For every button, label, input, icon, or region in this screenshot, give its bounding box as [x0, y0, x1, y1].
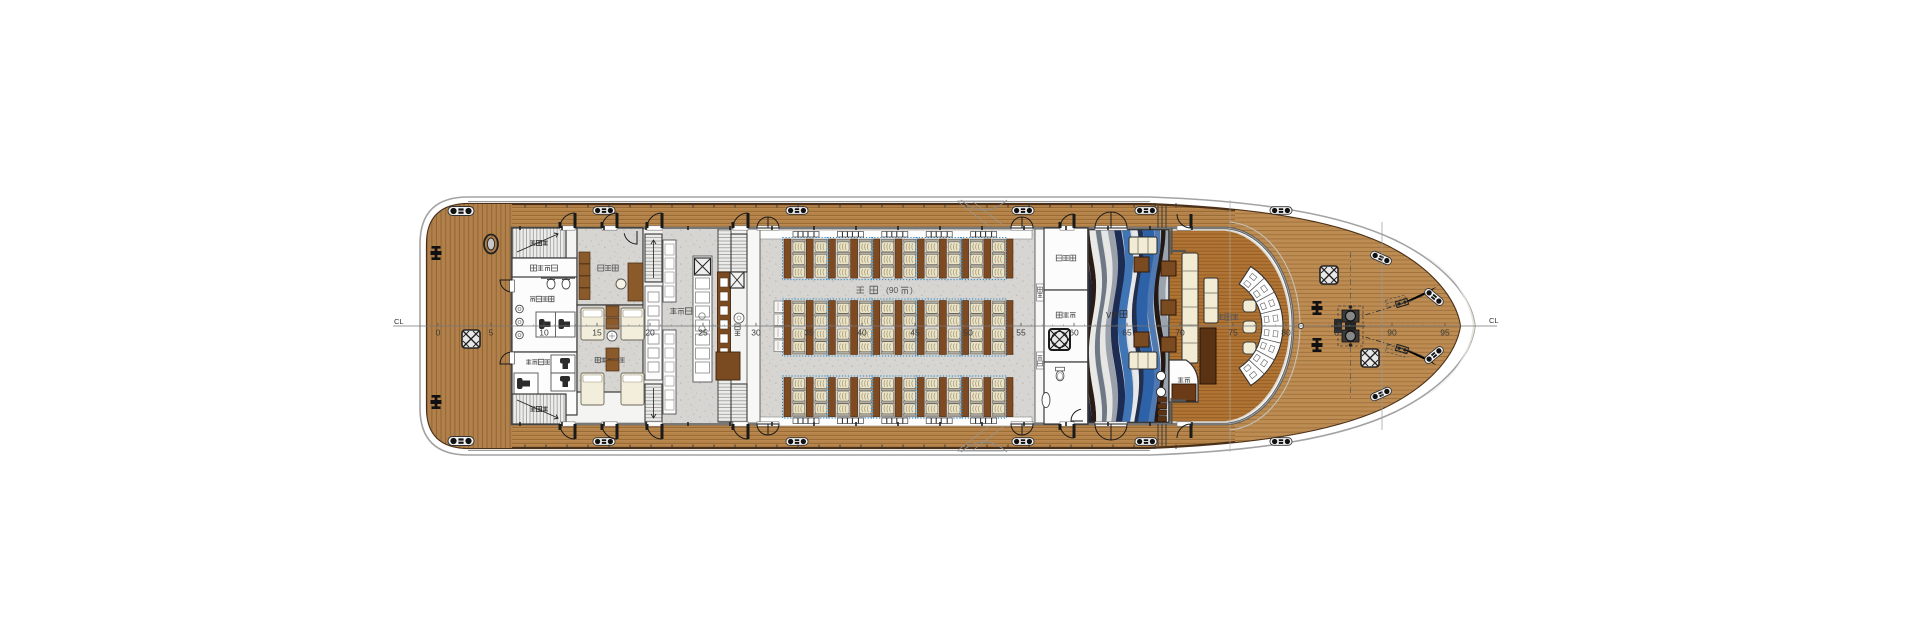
svg-text:5: 5: [489, 328, 494, 338]
svg-text:75: 75: [1228, 328, 1238, 338]
svg-text:95: 95: [1440, 328, 1450, 338]
svg-text:40: 40: [857, 328, 867, 338]
svg-text:10: 10: [539, 328, 549, 338]
svg-text:15: 15: [592, 328, 602, 338]
svg-text:80: 80: [1281, 328, 1291, 338]
svg-text:35: 35: [804, 328, 814, 338]
svg-text:(90: (90: [886, 285, 899, 295]
svg-text:85: 85: [1334, 328, 1344, 338]
svg-text:VIP: VIP: [1106, 311, 1119, 320]
svg-text:25: 25: [698, 328, 708, 338]
svg-text:45: 45: [910, 328, 920, 338]
svg-text:55: 55: [1016, 328, 1026, 338]
svg-text:65: 65: [1122, 328, 1132, 338]
svg-text:90: 90: [1387, 328, 1397, 338]
svg-text:0: 0: [436, 328, 441, 338]
svg-text:CL: CL: [394, 317, 404, 326]
svg-text:20: 20: [645, 328, 655, 338]
svg-text:30: 30: [751, 328, 761, 338]
svg-text:70: 70: [1175, 328, 1185, 338]
svg-text:60: 60: [1069, 328, 1079, 338]
svg-text:CL: CL: [1489, 316, 1499, 325]
svg-text:50: 50: [963, 328, 973, 338]
svg-text:): ): [910, 285, 913, 295]
